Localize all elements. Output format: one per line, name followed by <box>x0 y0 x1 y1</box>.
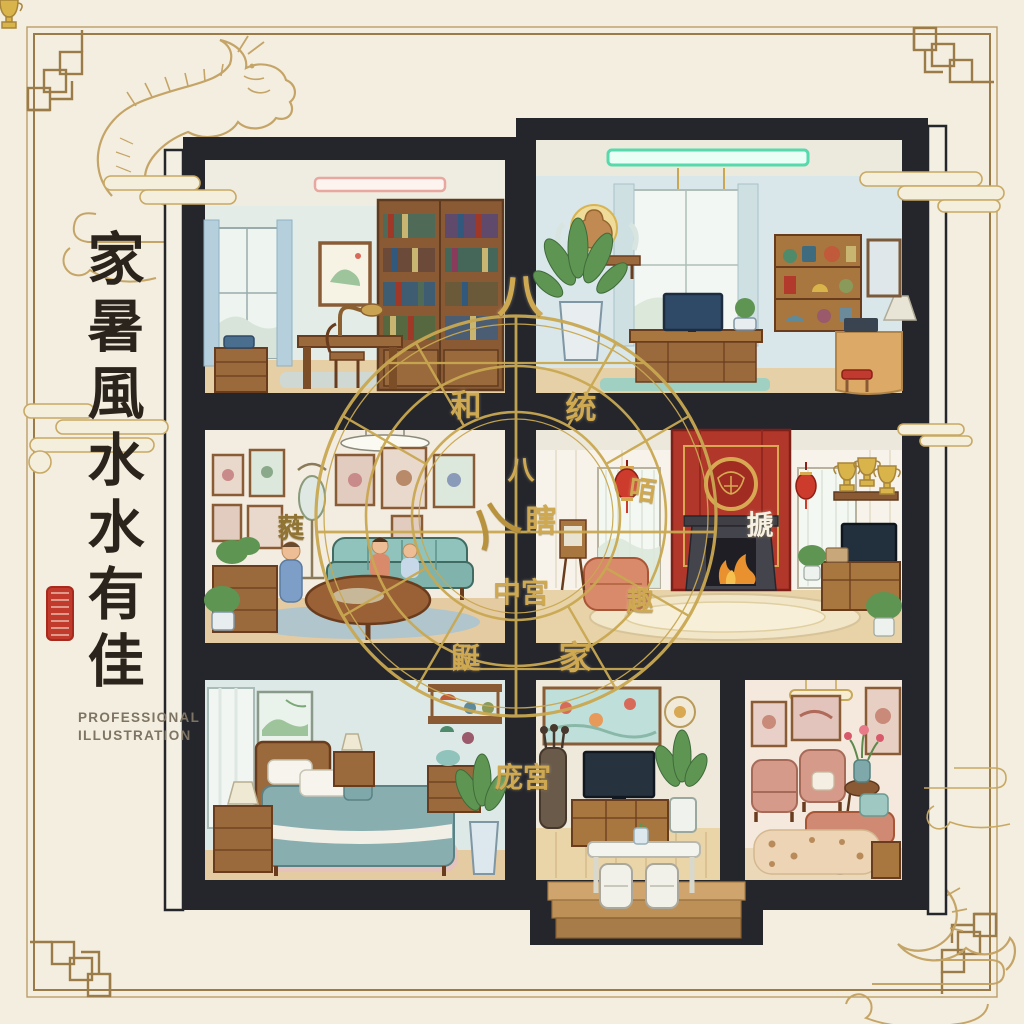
teal-pillow <box>860 794 888 816</box>
study-ceiling-light <box>315 178 445 191</box>
subtitle-caption: PROFESSIONAL ILLUSTRATION <box>78 709 200 745</box>
blue-white-vase <box>470 822 498 874</box>
calligraphy-character: 水 <box>58 494 174 561</box>
bonsai-plant <box>734 298 756 330</box>
subtitle-line-2: ILLUSTRATION <box>78 727 200 745</box>
television <box>584 752 654 797</box>
calligraphy-character: 家 <box>58 226 174 293</box>
trophy-icon <box>0 0 22 28</box>
table-vase <box>634 828 648 844</box>
display-shelf-unit <box>775 235 861 331</box>
landscape-painting <box>258 692 312 748</box>
calligraphy-column: 家暑風水水有佳 <box>58 226 174 695</box>
corner-key-ornament <box>28 30 82 110</box>
aqua-ceiling-light <box>608 150 808 165</box>
meditation-computer-room <box>529 140 916 394</box>
leopard-rug <box>754 830 880 874</box>
tv-unit <box>572 752 668 846</box>
television <box>842 524 896 562</box>
house-right-side-face <box>928 126 946 914</box>
study-library-room <box>204 160 505 393</box>
calligraphy-character: 暑 <box>58 293 174 360</box>
blue-box <box>224 336 254 348</box>
artist-seal-stamp <box>46 586 74 641</box>
illustration-canvas: 家暑風水水有佳 PROFESSIONAL ILLUSTRATION 八和统八八瞎… <box>0 0 1024 1024</box>
wooden-chest <box>872 842 900 878</box>
fireplace <box>684 516 778 590</box>
flower-vase <box>854 760 870 782</box>
wall-picture <box>868 240 900 296</box>
calligraphy-character: 風 <box>58 360 174 427</box>
picture-card <box>826 548 848 562</box>
study-painting <box>320 243 370 305</box>
calligraphy-character: 有 <box>58 561 174 628</box>
computer-monitor <box>664 294 722 330</box>
calligraphy-character: 佳 <box>58 628 174 695</box>
bedside-lamp <box>342 734 362 750</box>
sitting-room <box>745 680 902 880</box>
subtitle-line-1: PROFESSIONAL <box>78 709 200 727</box>
calligraphy-character: 水 <box>58 427 174 494</box>
bedside-lamp <box>228 782 258 804</box>
white-pillow <box>812 772 834 790</box>
laptop <box>844 318 878 332</box>
round-wall-art <box>665 697 695 727</box>
